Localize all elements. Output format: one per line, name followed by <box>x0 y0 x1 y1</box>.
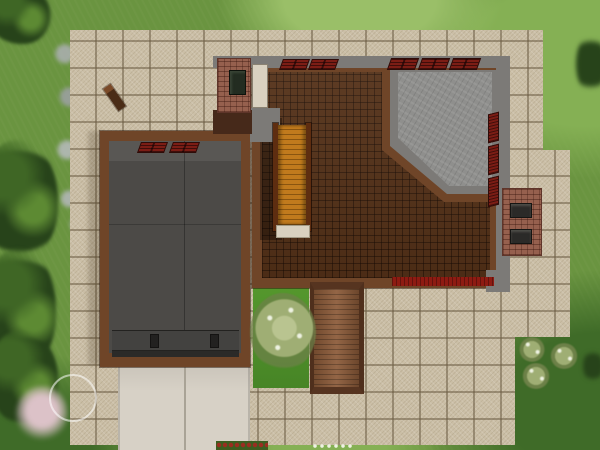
garage-window-1[interactable] <box>137 142 168 153</box>
white-flower-shrub-3[interactable] <box>521 363 551 389</box>
window-north-4[interactable] <box>418 58 450 70</box>
garage-roof[interactable] <box>109 141 241 353</box>
brush-cursor-ring <box>49 374 97 422</box>
roof-eave-right <box>496 56 510 292</box>
garage-door-hinge <box>210 334 219 348</box>
staircase[interactable] <box>278 125 306 225</box>
window-north-2[interactable] <box>308 59 339 70</box>
chimney-vent <box>510 203 532 218</box>
driveway[interactable] <box>118 366 250 450</box>
window-east-2[interactable] <box>488 144 499 176</box>
window-north-1[interactable] <box>279 59 310 70</box>
red-flower-bed <box>216 441 268 450</box>
white-flower-patch <box>312 442 352 450</box>
lot-viewport[interactable] <box>0 0 600 450</box>
white-flower-shrub-2[interactable] <box>549 343 579 369</box>
stair-landing <box>276 225 310 238</box>
window-east-1[interactable] <box>488 112 499 144</box>
garage-window-2[interactable] <box>169 142 200 153</box>
firebox-opening <box>229 70 246 95</box>
wood-deck[interactable] <box>310 282 364 394</box>
east-chimney[interactable] <box>502 188 542 256</box>
courtyard-flowering-tree[interactable] <box>250 293 316 371</box>
garage-door-hinge <box>150 334 159 348</box>
red-planter-strip[interactable] <box>392 277 494 286</box>
garage-door[interactable] <box>112 330 239 351</box>
window-north-5[interactable] <box>449 58 481 70</box>
garage-door-sill <box>112 351 239 357</box>
window-east-3[interactable] <box>488 176 499 208</box>
interior-door[interactable] <box>252 64 268 108</box>
north-west-wall-band <box>213 110 252 134</box>
stair-rail-right <box>306 123 311 231</box>
white-flower-shrub-1[interactable] <box>518 337 546 362</box>
window-north-3[interactable] <box>387 58 419 70</box>
chimney-vent <box>510 229 532 244</box>
